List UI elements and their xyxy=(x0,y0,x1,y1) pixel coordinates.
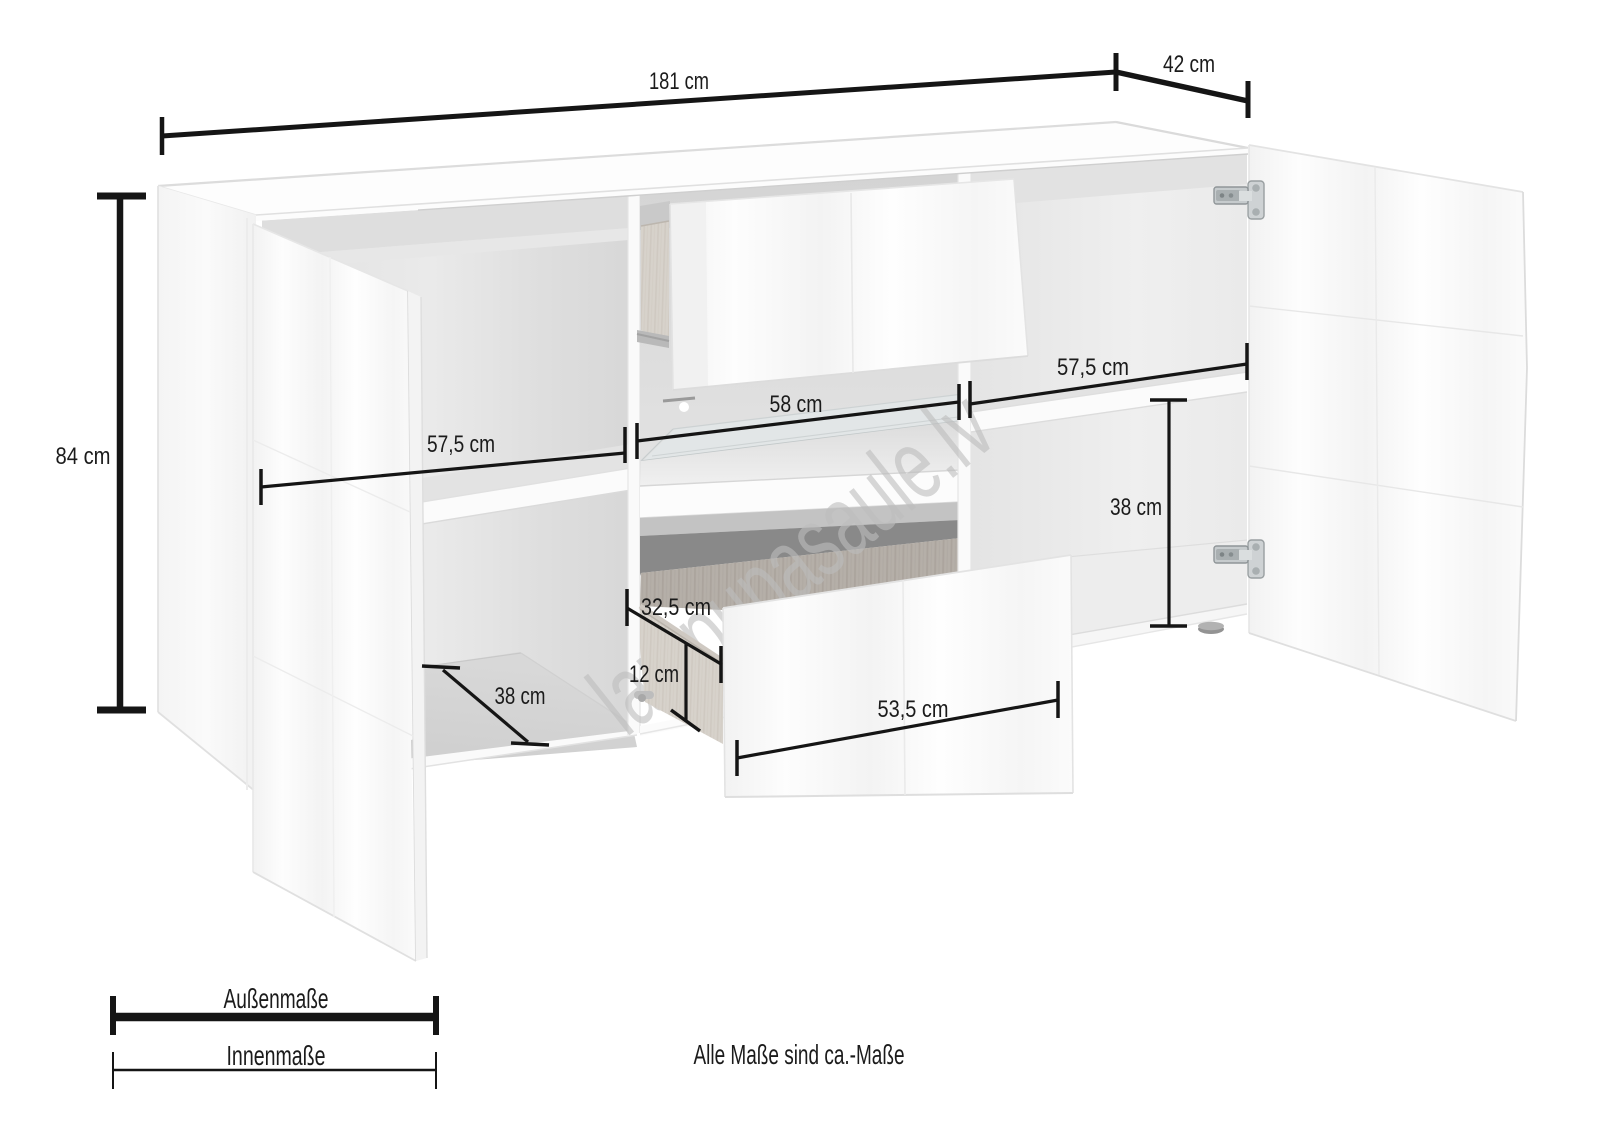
svg-text:84 cm: 84 cm xyxy=(56,443,111,470)
svg-text:58 cm: 58 cm xyxy=(770,391,823,418)
svg-text:53,5 cm: 53,5 cm xyxy=(878,696,949,723)
svg-text:38 cm: 38 cm xyxy=(1110,494,1162,521)
svg-text:181 cm: 181 cm xyxy=(649,68,709,95)
svg-text:32,5 cm: 32,5 cm xyxy=(641,594,711,621)
svg-text:Innenmaße: Innenmaße xyxy=(227,1040,326,1071)
svg-text:57,5 cm: 57,5 cm xyxy=(427,431,495,458)
svg-text:38 cm: 38 cm xyxy=(495,683,546,710)
svg-text:Alle Maße sind ca.-Maße: Alle Maße sind ca.-Maße xyxy=(694,1039,905,1070)
svg-text:12 cm: 12 cm xyxy=(629,661,679,688)
svg-text:42 cm: 42 cm xyxy=(1163,51,1215,78)
svg-text:57,5 cm: 57,5 cm xyxy=(1057,354,1129,381)
svg-text:Außenmaße: Außenmaße xyxy=(224,983,329,1014)
